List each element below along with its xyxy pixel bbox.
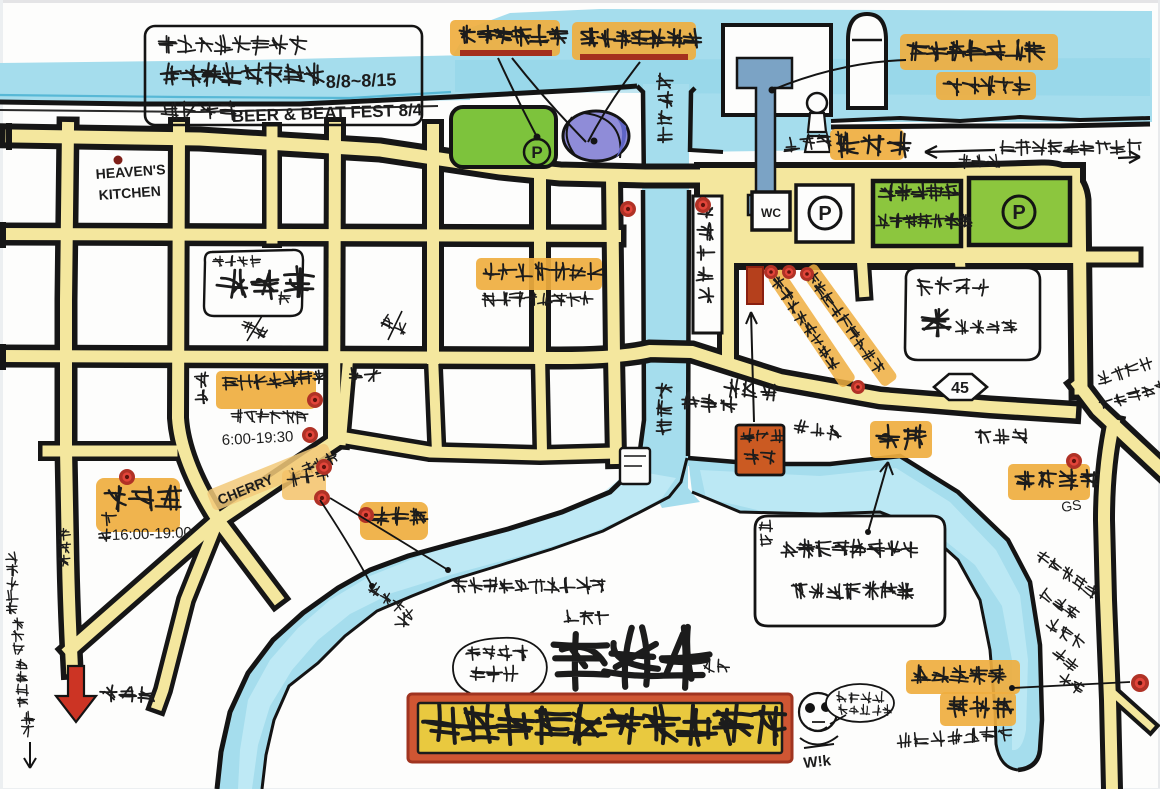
svg-text:P: P <box>531 143 542 162</box>
svg-text:8/8~8/15: 8/8~8/15 <box>325 70 396 92</box>
svg-text:45: 45 <box>951 380 969 397</box>
svg-text:W!k: W!k <box>803 752 833 772</box>
svg-text:GS: GS <box>1060 496 1082 515</box>
svg-text:P: P <box>1012 202 1025 224</box>
svg-text:WC: WC <box>761 206 781 220</box>
svg-text:16:00-19:00: 16:00-19:00 <box>112 524 193 544</box>
svg-text:P: P <box>818 203 831 225</box>
